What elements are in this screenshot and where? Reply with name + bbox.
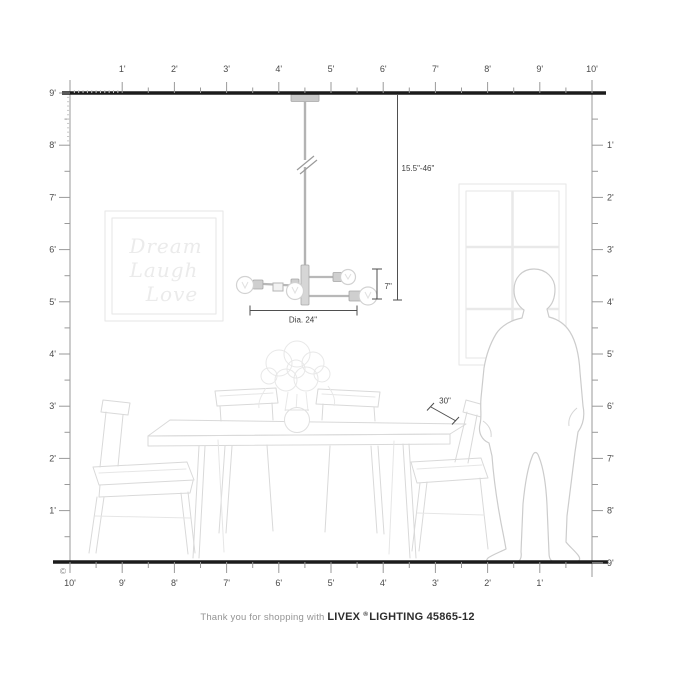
ruler-label: 1'	[119, 64, 126, 74]
ruler-label: 1'	[607, 140, 614, 150]
ruler-label: 3'	[432, 578, 439, 588]
wall-art: Dream Laugh Love	[105, 211, 223, 321]
diameter-label: Dia. 24"	[289, 316, 317, 325]
table-clearance-line	[427, 403, 459, 425]
ruler-label: 8'	[607, 506, 614, 516]
ruler-label: 4'	[275, 64, 282, 74]
ruler-label: 2'	[484, 578, 491, 588]
ruler-label: 6'	[49, 245, 56, 255]
dimension-diagram-canvas: Dream Laugh Love	[0, 0, 675, 675]
chandelier-bulb-center	[287, 283, 304, 300]
ruler-label: 8'	[484, 64, 491, 74]
table-apron	[148, 434, 450, 446]
ruler-label: 1'	[536, 578, 543, 588]
registered-mark: ®	[363, 611, 368, 618]
ruler-label: 8'	[171, 578, 178, 588]
chandelier-bulb-upper-right	[341, 270, 356, 285]
ruler-label: 10'	[64, 578, 76, 588]
table-leg-back-right	[389, 441, 394, 554]
footer-thanks: Thank you for shopping with	[200, 612, 324, 623]
copyright-mark: ©	[60, 566, 67, 576]
chandelier-canopy	[291, 95, 319, 102]
rod-break-icon	[297, 156, 317, 174]
ruler-label: 7'	[432, 64, 439, 74]
table-clearance-label: 30"	[439, 397, 451, 406]
footer-text: Thank you for shopping with LIVEX®LIGHTI…	[0, 611, 675, 623]
dimension-annotations: 15.5"-46" 7" Dia. 24" 30"	[250, 95, 459, 425]
ruler-label: 8'	[49, 140, 56, 150]
wall-art-line1: Dream	[128, 234, 202, 258]
ruler-label: 2'	[607, 192, 614, 202]
ruler-label: 1'	[49, 506, 56, 516]
ruler-label: 4'	[380, 578, 387, 588]
ruler-label: 3'	[607, 245, 614, 255]
fixture-height-label: 7"	[385, 282, 392, 291]
footer-product: LIGHTING 45865-12	[369, 611, 475, 623]
ruler-label: 5'	[328, 578, 335, 588]
hanging-height-line	[393, 95, 402, 300]
ruler-label: 7'	[223, 578, 230, 588]
ruler-label: 7'	[49, 192, 56, 202]
ruler-label: 6'	[607, 401, 614, 411]
chandelier	[237, 95, 378, 306]
chair-right	[411, 400, 488, 551]
ruler-label: 7'	[607, 453, 614, 463]
ruler-label: 6'	[275, 578, 282, 588]
vase	[285, 408, 310, 433]
ruler-label: 5'	[607, 349, 614, 359]
ruler-label: 4'	[49, 349, 56, 359]
ruler-label: 4'	[607, 297, 614, 307]
diameter-line	[250, 306, 357, 316]
wall-art-line2: Laugh	[129, 258, 199, 282]
chair-back-right	[316, 389, 384, 534]
table-leg-front-right	[403, 444, 416, 558]
chair-back-left	[215, 388, 278, 533]
ruler-label: 5'	[328, 64, 335, 74]
table-leg-front-left	[193, 446, 205, 558]
ruler-label: 9'	[536, 64, 543, 74]
ruler-label: 9'	[119, 578, 126, 588]
ruler-label: 3'	[49, 401, 56, 411]
ruler-label: 10'	[586, 64, 598, 74]
arm-joint	[273, 283, 283, 291]
chandelier-bulb-lower-right	[359, 287, 377, 305]
ruler-label: 9'	[607, 558, 614, 568]
ruler-label: 5'	[49, 297, 56, 307]
chandelier-center-column	[301, 265, 309, 305]
ruler-label: 2'	[171, 64, 178, 74]
ruler-label: 2'	[49, 453, 56, 463]
table-leg-back-left	[218, 440, 224, 552]
footer-brand: LIVEX	[327, 611, 360, 623]
person-silhouette	[479, 269, 583, 562]
chair-left	[89, 400, 195, 554]
ruler-label: 9'	[49, 88, 56, 98]
flower-centerpiece	[259, 341, 335, 433]
chandelier-bulb-left	[237, 277, 254, 294]
product-dimension-diagram: Dream Laugh Love	[0, 0, 675, 675]
ruler-label: 6'	[380, 64, 387, 74]
hanging-height-label: 15.5"-46"	[402, 164, 435, 173]
bulb-socket-left	[253, 280, 263, 289]
wall-art-line3: Love	[145, 282, 198, 306]
ruler-label: 3'	[223, 64, 230, 74]
dining-table	[148, 420, 466, 558]
